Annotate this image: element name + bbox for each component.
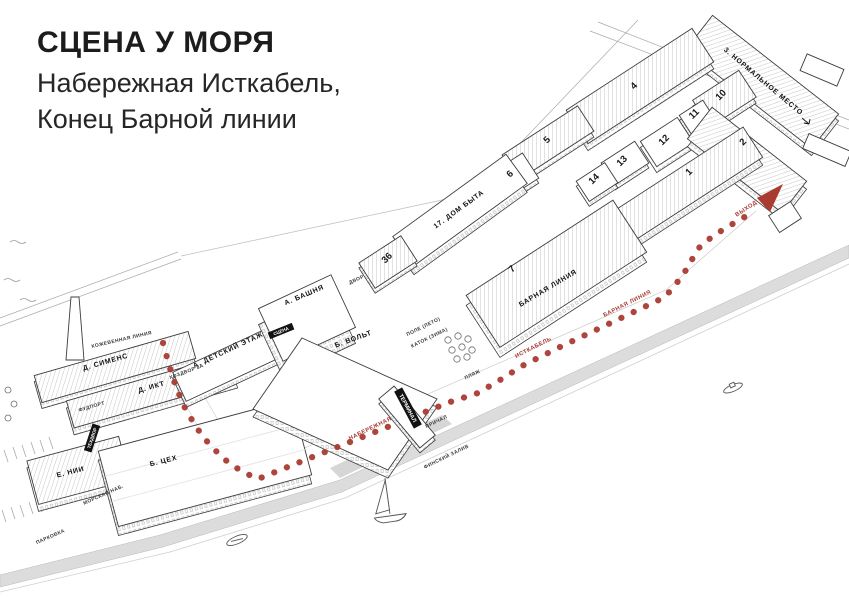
water-ripples (4, 241, 36, 302)
subtitle-line-1: Набережная Исткабель, (37, 66, 341, 102)
motorboat (722, 379, 744, 395)
subtitle-line-2: Конец Барной линии (37, 102, 341, 138)
dvor-label: ДВОР (348, 274, 365, 286)
parkovka-label: ПАРКОВКА (35, 528, 66, 546)
rowboat (225, 532, 248, 548)
title-block: СЦЕНА У МОРЯ Набережная Исткабель, Конец… (37, 26, 341, 138)
chimney (66, 297, 84, 360)
sailboat (369, 476, 407, 524)
page-title: СЦЕНА У МОРЯ (37, 26, 341, 60)
poster-map: СЦЕНА У МОРЯ Набережная Исткабель, Конец… (0, 0, 849, 600)
plyazh-label: ПЛЯЖ (464, 369, 482, 382)
